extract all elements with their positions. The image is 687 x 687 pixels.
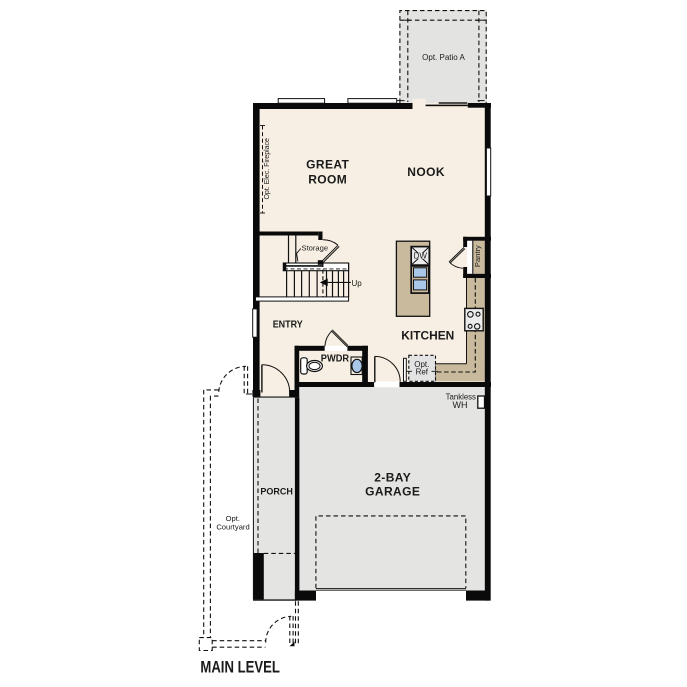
svg-text:Storage: Storage <box>302 243 329 252</box>
svg-text:PWDR: PWDR <box>321 354 350 365</box>
svg-text:Opt. Elec. Fireplace: Opt. Elec. Fireplace <box>264 138 271 200</box>
svg-text:Pantry: Pantry <box>473 245 482 267</box>
svg-text:Opt.: Opt. <box>226 514 240 523</box>
svg-text:MAIN LEVEL: MAIN LEVEL <box>200 659 280 677</box>
svg-text:ENTRY: ENTRY <box>273 319 303 331</box>
svg-text:Courtyard: Courtyard <box>216 523 249 532</box>
svg-text:ROOM: ROOM <box>308 172 347 186</box>
svg-text:DW: DW <box>414 252 428 261</box>
svg-text:PORCH: PORCH <box>260 487 293 497</box>
svg-text:NOOK: NOOK <box>407 165 445 179</box>
svg-text:GREAT: GREAT <box>306 158 349 172</box>
svg-text:WH: WH <box>453 400 468 410</box>
svg-text:2-BAY: 2-BAY <box>374 470 411 484</box>
svg-text:GARAGE: GARAGE <box>365 485 420 499</box>
svg-text:Ref: Ref <box>416 368 429 377</box>
svg-text:KITCHEN: KITCHEN <box>401 328 454 342</box>
svg-text:Opt. Patio A: Opt. Patio A <box>422 53 465 62</box>
svg-text:Up: Up <box>352 279 363 288</box>
